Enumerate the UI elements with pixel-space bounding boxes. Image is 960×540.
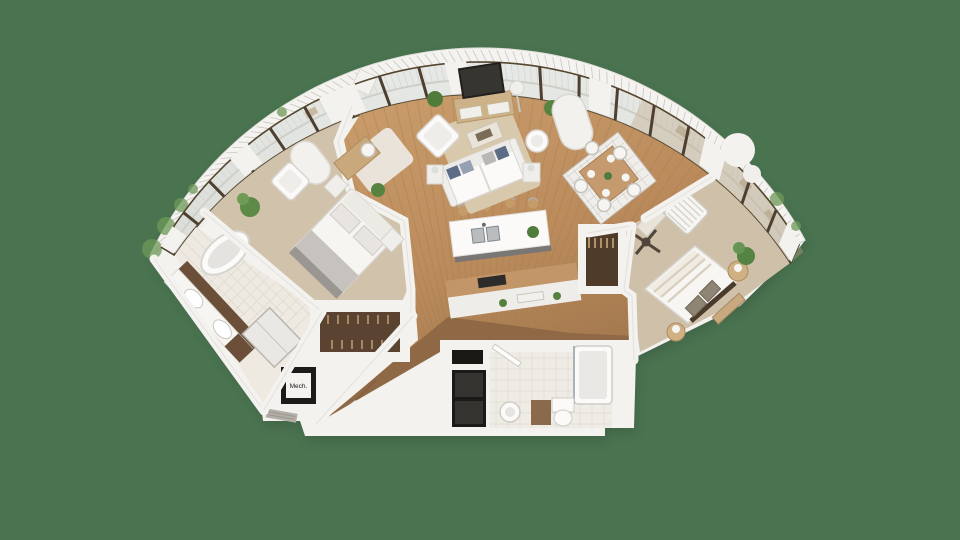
svg-text:Mech.: Mech. [290, 383, 308, 390]
